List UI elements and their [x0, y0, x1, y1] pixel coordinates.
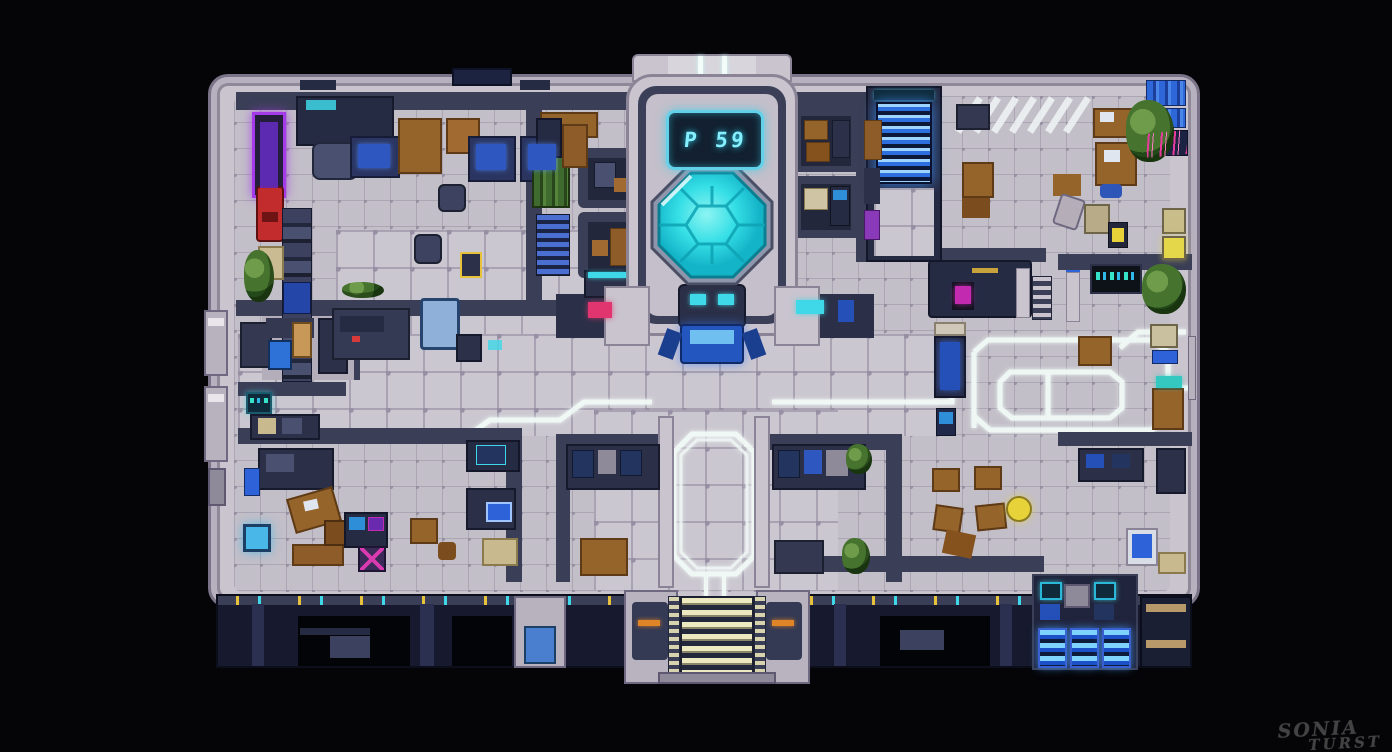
desk-wood-i4	[410, 518, 438, 544]
chair-wood-j2	[974, 466, 1002, 490]
machine-i6-screen	[486, 502, 512, 522]
plant-hr-top	[846, 444, 872, 474]
machine-yellow-2	[1162, 208, 1186, 234]
chair-blue-e	[1100, 184, 1122, 198]
desk-screen-1-glass	[358, 144, 390, 168]
ladder-f	[1032, 276, 1052, 320]
capsule-screen	[940, 342, 960, 390]
shelf-wood-b	[562, 124, 588, 168]
desk-wood-track2	[1152, 388, 1184, 430]
locker-j-right	[1156, 448, 1186, 494]
chamber-wing-right	[774, 286, 820, 346]
crate-wood-d2	[806, 142, 830, 162]
strap-tan-2	[1146, 640, 1186, 648]
desk-wood-e3	[1053, 174, 1081, 196]
locker-glow-2	[1070, 628, 1099, 668]
office-chair-a1	[438, 184, 466, 212]
facade-crates	[330, 636, 370, 658]
stairbay-left-light	[638, 620, 660, 626]
stairs-blue	[876, 102, 932, 184]
stair-landing	[874, 188, 934, 256]
wall-mid-left-b	[458, 300, 558, 316]
wall-j2-top	[1058, 432, 1192, 446]
console-eye-left	[690, 294, 706, 305]
console-i5-screen	[476, 445, 506, 465]
paper-e1	[1100, 112, 1114, 122]
crate-dark-e1	[956, 104, 990, 130]
capsule-top	[934, 322, 966, 336]
crate-light-track	[1150, 324, 1178, 348]
locker-dark-stair	[864, 168, 880, 204]
bench-wood-i	[292, 544, 344, 566]
plant-a	[244, 250, 274, 302]
console-eye-right	[718, 294, 734, 305]
screen-glow-i	[243, 524, 271, 552]
monitor-hl-3	[620, 450, 642, 476]
hull-vent-2	[208, 394, 224, 402]
console-track-screen	[939, 412, 953, 424]
crate-wood-e1	[962, 162, 994, 198]
monitor-hr-2	[804, 450, 822, 474]
machine-g4	[456, 334, 482, 362]
game-map-screenshot: P 59 SONIA TURST	[0, 0, 1392, 752]
stair-top-screens	[874, 90, 934, 100]
cyan-screen-l1	[1040, 582, 1062, 600]
tree-e2	[1142, 264, 1186, 314]
cabinet-wood-h	[580, 538, 628, 576]
locker-glow-1	[1038, 628, 1067, 668]
locker-blue-i	[244, 468, 260, 496]
console-i1-top	[266, 454, 294, 472]
crate-wood-d1	[804, 120, 828, 140]
vending-tan-g	[292, 322, 312, 358]
crate-wood-j5	[942, 529, 976, 559]
locker-striped-b	[536, 214, 570, 276]
banner-dark-top	[452, 68, 512, 86]
vend-magenta-screen	[955, 286, 971, 304]
device-dark-g2	[282, 418, 302, 434]
facade-pillar-4	[834, 604, 846, 666]
pillar-light-f2	[1066, 272, 1080, 322]
stairs-main	[680, 596, 754, 674]
facade-pillar-5	[1000, 604, 1012, 666]
window-blue-l2	[1094, 604, 1114, 620]
sign-cyan-g-glyphs	[250, 398, 268, 403]
neon-doorframe-inner	[260, 122, 278, 188]
pillar-light-f1	[1016, 268, 1030, 318]
vent-top-1	[300, 80, 336, 90]
crate-khaki-1	[1084, 204, 1110, 234]
facade-door-blue	[524, 626, 556, 664]
locker-purple	[864, 210, 880, 240]
monitor-hl-2	[598, 450, 616, 474]
crate-wood-stair	[864, 120, 882, 160]
door-mid-blue	[420, 298, 460, 350]
device-cyan-g4	[488, 340, 502, 350]
monitor-hr-1	[778, 450, 800, 478]
locker-blue	[283, 282, 311, 314]
crate-wood-e2	[962, 198, 990, 218]
window-blue-l1	[1040, 604, 1060, 620]
desk-screen-2-glass	[476, 144, 506, 170]
crate-b3	[592, 240, 608, 256]
strip-gold-f	[972, 268, 998, 273]
crate-light-d	[804, 188, 828, 210]
facade-crates-2	[900, 630, 944, 650]
facade-pillar-2	[420, 604, 434, 666]
door-b-light	[588, 272, 626, 278]
dock-crate-a	[460, 252, 482, 278]
table-wood-track	[1078, 336, 1112, 366]
office-chair-a2	[414, 234, 442, 264]
hull-vent-1	[208, 318, 224, 326]
fridge-blue-g	[268, 340, 292, 370]
terminal-e2-glyphs	[1096, 272, 1136, 280]
stairbay-right-panel	[766, 602, 802, 660]
desk-screen-3-glass	[528, 144, 556, 170]
table-round-yellow	[1006, 496, 1032, 522]
graffiti-pink	[1145, 130, 1187, 158]
machine-mid-1	[340, 316, 384, 332]
facade-pillar-1	[252, 604, 264, 666]
vending-red-slot	[262, 212, 278, 222]
monitor-hl-1	[572, 450, 594, 478]
plant-hr-bottom	[842, 538, 870, 574]
screen-cyan-right	[796, 300, 824, 314]
screen-red	[588, 302, 612, 318]
desk-wood-a1	[398, 118, 442, 174]
bush-a	[342, 282, 384, 298]
facade-open-2	[452, 616, 512, 666]
crates-hr-bottom	[774, 540, 824, 574]
couch-gray-e	[1052, 193, 1087, 231]
cyan-screen-l2	[1094, 582, 1116, 600]
desk-j-screen2	[1112, 454, 1130, 468]
machine-yellow-1-in	[1112, 228, 1124, 242]
locker-glow-3	[1102, 628, 1131, 668]
console-head	[678, 284, 746, 328]
stairbay-right-light	[772, 620, 794, 626]
sign-cyan-g	[246, 392, 272, 414]
stool-wood-i	[438, 542, 456, 560]
machine-d2-screen	[833, 190, 847, 200]
vent-top-2	[520, 80, 550, 90]
stairs-rail-left	[668, 596, 680, 674]
console-i2-s1	[349, 517, 365, 530]
crate-tan-j	[1158, 552, 1186, 574]
locker-d1	[832, 120, 850, 158]
chair-wood-j1	[932, 468, 960, 492]
artist-signature: SONIA TURST	[1278, 719, 1383, 752]
console-i2-s2	[368, 517, 384, 531]
stairbay-left-panel	[632, 602, 668, 660]
machine-white-blue-j-in	[1132, 534, 1152, 558]
holo-pool	[650, 164, 774, 286]
screen-teal-track	[1156, 376, 1182, 388]
machine-mid-dot	[352, 336, 360, 342]
paper-e2	[1104, 150, 1120, 162]
console-base-screen	[690, 330, 734, 344]
corridor-edge-left	[658, 416, 674, 588]
panel-gray-l	[1064, 584, 1090, 608]
slab-blue-track	[1152, 350, 1178, 364]
digital-room-sign: P 59	[666, 110, 764, 170]
hull-module-right	[1188, 336, 1196, 400]
stairs-rail-right	[754, 596, 766, 674]
device-tan-g2	[258, 418, 276, 434]
holo-pool-glass	[650, 164, 774, 286]
wall-j-horiz	[792, 556, 1044, 572]
crates-tan-i	[482, 538, 518, 566]
device-blue-right	[838, 300, 854, 322]
stairs-apron	[658, 672, 776, 684]
machine-yellow-3	[1162, 236, 1186, 260]
monitor-hr-3	[826, 450, 848, 476]
artist-signature-line2: TURST	[1308, 736, 1382, 752]
facade-pipe-1	[300, 628, 370, 635]
chair-wood-j4	[975, 503, 1008, 532]
machine-b2	[594, 162, 616, 188]
crate-x-straps	[360, 548, 384, 570]
corridor-edge-right	[754, 416, 770, 588]
desk-console-screen	[306, 100, 336, 110]
hull-module-3	[208, 468, 226, 506]
desk-j-screen1	[1086, 454, 1104, 468]
strap-tan-1	[1146, 604, 1186, 612]
digital-room-sign-text: P 59	[682, 128, 747, 152]
